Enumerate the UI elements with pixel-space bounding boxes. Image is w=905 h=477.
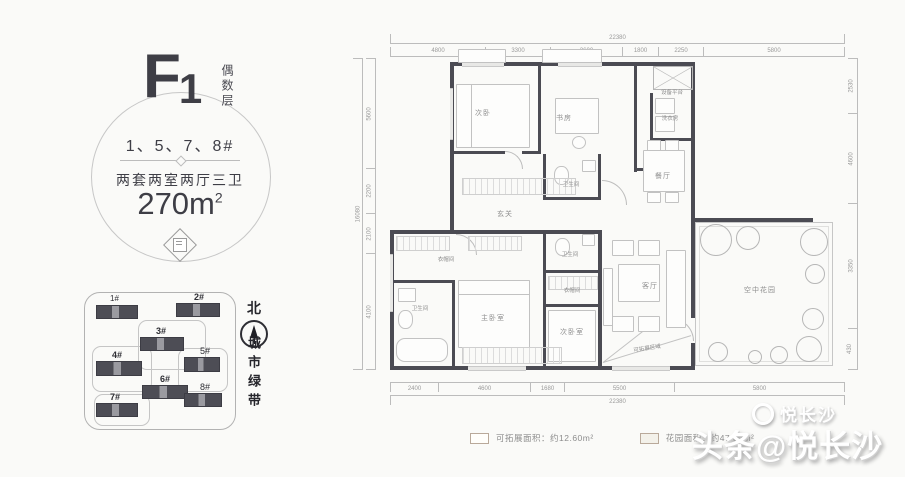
dim-left-total: 16080	[353, 58, 363, 370]
fixture-sink	[582, 160, 596, 172]
wall-segment	[598, 154, 601, 200]
unit-info-panel: F1 偶数层 1、5、7、8# 两套两室两厅三卫 270m2	[85, 52, 315, 272]
wall-segment	[390, 280, 455, 283]
north-label: 北	[238, 298, 270, 318]
furniture-washer	[655, 98, 675, 114]
tree-icon	[796, 336, 822, 362]
legend-label-expandable: 可拓展面积：约12.60m²	[496, 432, 594, 444]
room-label-bath-study: 卫生间	[563, 180, 580, 188]
dim-right-segments: 2530 4600 3350 430	[848, 58, 858, 370]
furniture-pillow	[458, 280, 530, 295]
equipment-platform-box	[653, 66, 693, 90]
legend-swatch-garden	[640, 433, 659, 444]
room-label-bath-master: 卫生间	[412, 304, 429, 312]
legend-swatch-expandable	[470, 433, 489, 444]
wardrobe	[462, 178, 576, 195]
building-footprint-2	[176, 303, 220, 317]
building-footprint-6	[142, 385, 188, 399]
room-label-living: 客厅	[642, 281, 658, 291]
unit-area-value: 270m	[137, 186, 215, 221]
building-label-3: 3#	[156, 326, 166, 336]
tree-icon	[805, 264, 825, 284]
door-arc	[602, 180, 627, 205]
furniture-pillow	[456, 84, 472, 148]
wardrobe	[462, 347, 562, 364]
furniture-chair	[665, 140, 679, 151]
dim-left-segments: 5600 2200 2100 4100	[366, 58, 376, 370]
door-arc	[505, 151, 523, 169]
building-footprint-5	[184, 357, 220, 372]
fixture-sink	[398, 288, 416, 302]
building-footprint-7	[96, 403, 138, 417]
furniture-armchair	[638, 240, 660, 256]
room-label-study: 书房	[556, 113, 572, 123]
building-label-4: 4#	[112, 350, 122, 360]
floor-plan: 22380 4800 3300 3600 1800 2250 5800 2400…	[350, 18, 862, 420]
legend-item-expandable: 可拓展面积：约12.60m²	[470, 432, 594, 444]
room-label-dining: 餐厅	[655, 171, 671, 181]
fixture-bathtub	[396, 338, 448, 362]
building-footprint-8	[184, 393, 222, 407]
wardrobe	[468, 236, 522, 251]
divider	[120, 160, 240, 161]
room-label-cloakroom-master: 衣帽间	[438, 255, 455, 263]
furniture-chair	[572, 136, 586, 149]
ac-platform	[542, 49, 602, 63]
wall-segment	[538, 62, 541, 154]
watermark: 悦长沙 头条@悦长沙	[690, 393, 905, 477]
room-label-cloakroom-suite2: 衣帽间	[564, 286, 581, 294]
unit-code: F1	[143, 46, 202, 110]
building-footprint-4	[96, 361, 142, 376]
tree-icon	[736, 226, 760, 250]
window	[450, 88, 453, 140]
furniture-armchair	[612, 316, 634, 332]
furniture-chair	[665, 192, 679, 203]
room-label-bedroom-suite2: 次卧室	[560, 327, 584, 337]
window	[612, 366, 670, 371]
wall-segment	[543, 197, 601, 200]
unit-code-number: 1	[179, 65, 202, 112]
tree-icon	[748, 350, 762, 364]
unit-area: 270m2	[85, 186, 275, 222]
room-label-bath-suite2: 卫生间	[562, 250, 579, 258]
room-label-foyer: 玄关	[497, 209, 513, 219]
fixture-toilet	[398, 310, 413, 329]
wall-segment	[452, 280, 455, 370]
wall-segment	[598, 230, 602, 370]
building-footprint-3	[140, 337, 184, 351]
building-label-2: 2#	[194, 292, 204, 302]
room-label-bedroom2: 次卧	[475, 108, 491, 118]
fixture-sink	[582, 234, 595, 246]
window	[468, 366, 526, 371]
wall-segment	[390, 230, 602, 234]
dim-bottom-segments: 2400 4600 1680 5500 5800	[390, 382, 845, 392]
unit-area-sup: 2	[215, 190, 223, 206]
wall-segment	[522, 151, 541, 154]
building-label-7: 7#	[110, 392, 120, 402]
room-label-expandable-area: 可拓展区域	[633, 342, 661, 354]
building-numbers-label: 1、5、7、8#	[85, 132, 275, 156]
tree-icon	[700, 224, 732, 256]
tree-icon	[708, 342, 728, 362]
furniture-chair	[647, 140, 661, 151]
building-label-8: 8#	[200, 382, 210, 392]
watermark-main-text: 头条@悦长沙	[692, 421, 883, 466]
wall-segment	[546, 270, 600, 273]
window	[390, 254, 393, 312]
room-label-sky-garden: 空中花园	[744, 285, 776, 295]
furniture-tv-cabinet	[603, 268, 613, 326]
building-footprint-1	[96, 305, 138, 319]
furniture-sofa	[666, 250, 686, 328]
wall-segment	[650, 93, 653, 141]
wall-segment	[450, 151, 505, 154]
room-label-laundry: 洗衣房	[662, 114, 679, 122]
ac-platform	[458, 49, 506, 63]
furniture-armchair	[638, 316, 660, 332]
green-belt-label: 城市绿带	[244, 336, 263, 412]
tree-icon	[802, 308, 824, 330]
furniture-armchair	[612, 240, 634, 256]
dim-top-total: 22380	[390, 34, 845, 44]
floor-type-label: 偶数层	[219, 64, 236, 109]
building-label-5: 5#	[200, 346, 210, 356]
wardrobe	[396, 236, 450, 251]
unit-code-letter: F	[143, 42, 181, 111]
tree-icon	[770, 346, 788, 364]
site-plan: 1# 2# 3# 4# 5# 6# 7# 8# 北 城市绿带	[82, 288, 274, 433]
compass-ornament-icon	[163, 228, 197, 262]
wall-segment	[546, 304, 600, 307]
building-label-1: 1#	[110, 294, 119, 303]
tree-icon	[800, 228, 828, 256]
room-label-master-bedroom: 主卧室	[481, 313, 505, 323]
furniture-chair	[647, 192, 661, 203]
room-label-equipment-platform: 设备平台	[661, 88, 683, 96]
wall-segment	[634, 62, 637, 172]
building-label-6: 6#	[160, 374, 170, 384]
